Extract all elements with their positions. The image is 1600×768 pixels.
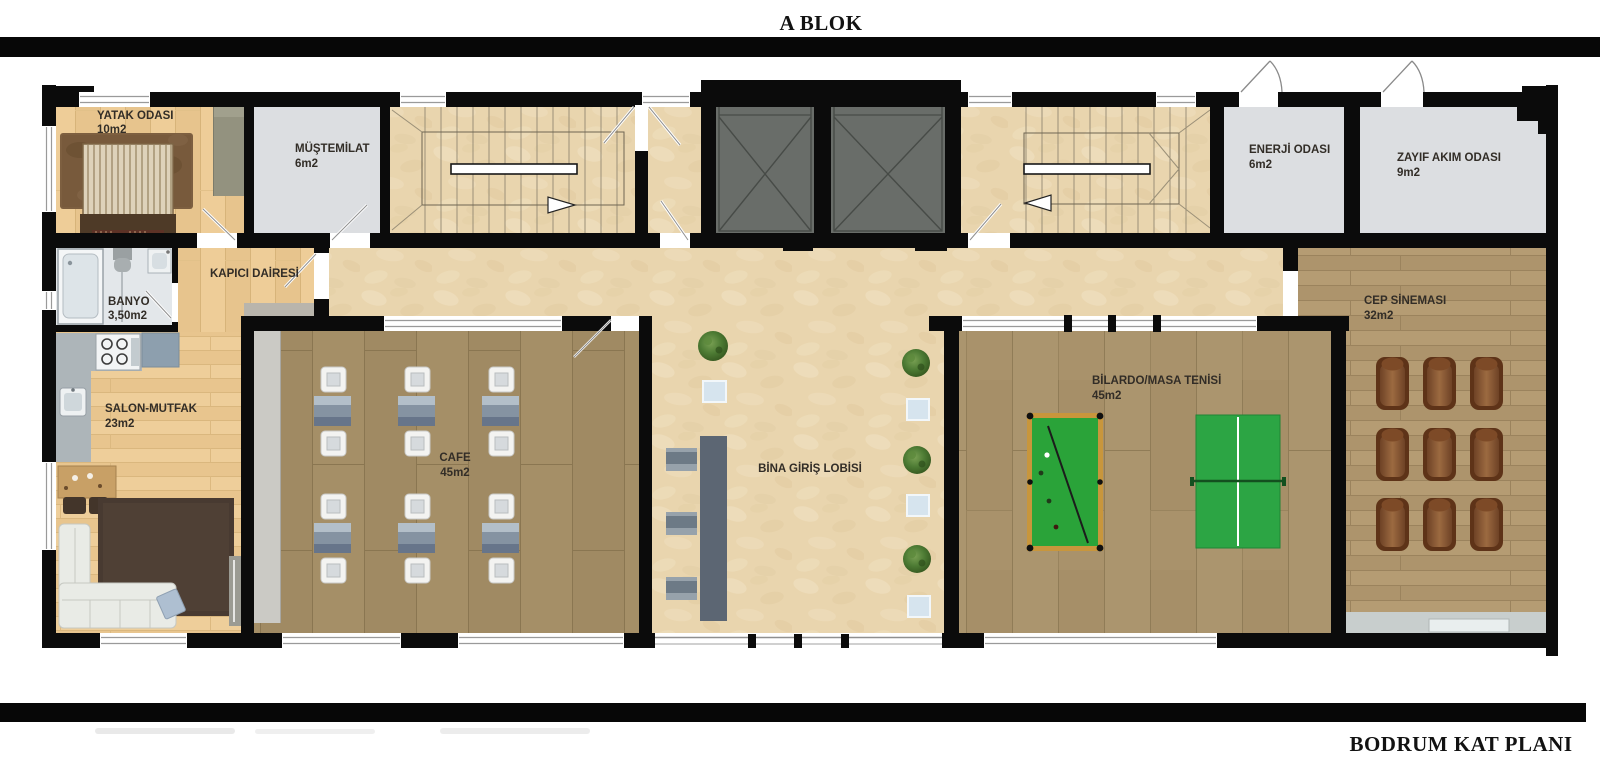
svg-text:6m2: 6m2 [1249,159,1272,171]
svg-text:A BLOK: A BLOK [780,11,863,35]
svg-text:BODRUM KAT PLANI: BODRUM KAT PLANI [1349,732,1572,756]
svg-text:KAPICI DAİRESİ: KAPICI DAİRESİ [210,267,299,280]
svg-text:MÜŞTEMİLAT: MÜŞTEMİLAT [295,142,370,155]
svg-text:9m2: 9m2 [1397,167,1420,179]
svg-text:YATAK ODASI: YATAK ODASI [97,110,173,122]
svg-text:SALON-MUTFAK: SALON-MUTFAK [105,403,198,415]
svg-text:10m2: 10m2 [97,124,126,136]
svg-text:3,50m2: 3,50m2 [108,310,147,322]
svg-text:45m2: 45m2 [1092,390,1121,402]
svg-text:BİNA GİRİŞ LOBİSİ: BİNA GİRİŞ LOBİSİ [758,462,862,475]
svg-text:6m2: 6m2 [295,158,318,170]
svg-text:CEP SİNEMASI: CEP SİNEMASI [1364,294,1446,307]
svg-text:BİLARDO/MASA TENİSİ: BİLARDO/MASA TENİSİ [1092,374,1221,387]
svg-text:ZAYIF AKIM ODASI: ZAYIF AKIM ODASI [1397,152,1501,164]
svg-text:BANYO: BANYO [108,296,150,308]
svg-text:45m2: 45m2 [440,467,469,479]
svg-text:23m2: 23m2 [105,418,134,430]
svg-text:CAFE: CAFE [439,452,471,464]
svg-text:ENERJİ ODASI: ENERJİ ODASI [1249,143,1330,156]
svg-text:32m2: 32m2 [1364,310,1393,322]
